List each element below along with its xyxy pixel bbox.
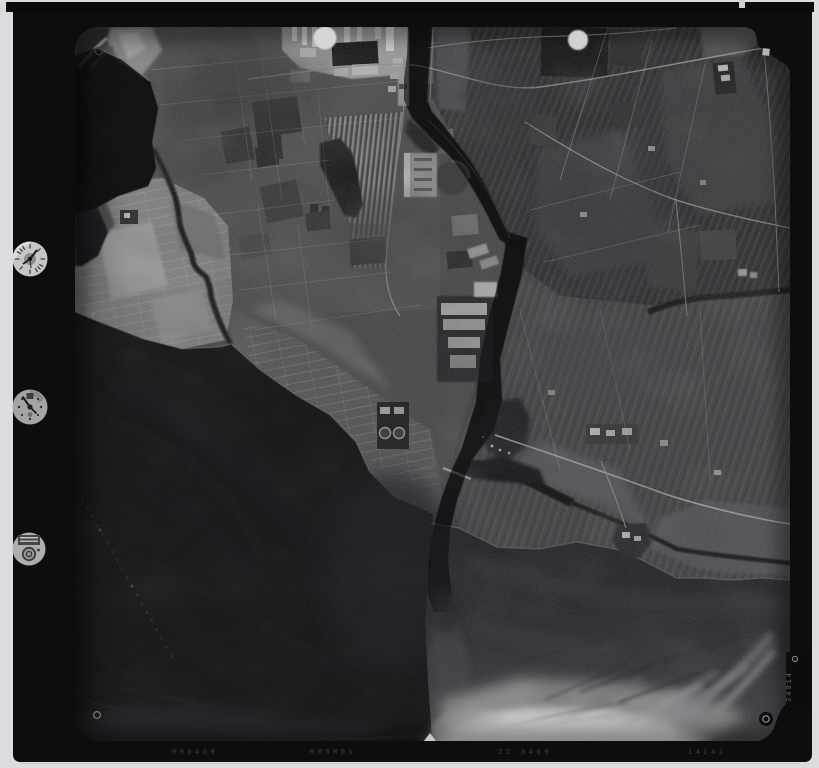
svg-text:M05M01: M05M01 <box>310 749 356 757</box>
svg-text:990409: 990409 <box>172 749 218 757</box>
svg-text:14141: 14141 <box>688 749 727 757</box>
svg-text:24014: 24014 <box>786 671 794 702</box>
svg-text:22 0409: 22 0409 <box>498 749 552 757</box>
